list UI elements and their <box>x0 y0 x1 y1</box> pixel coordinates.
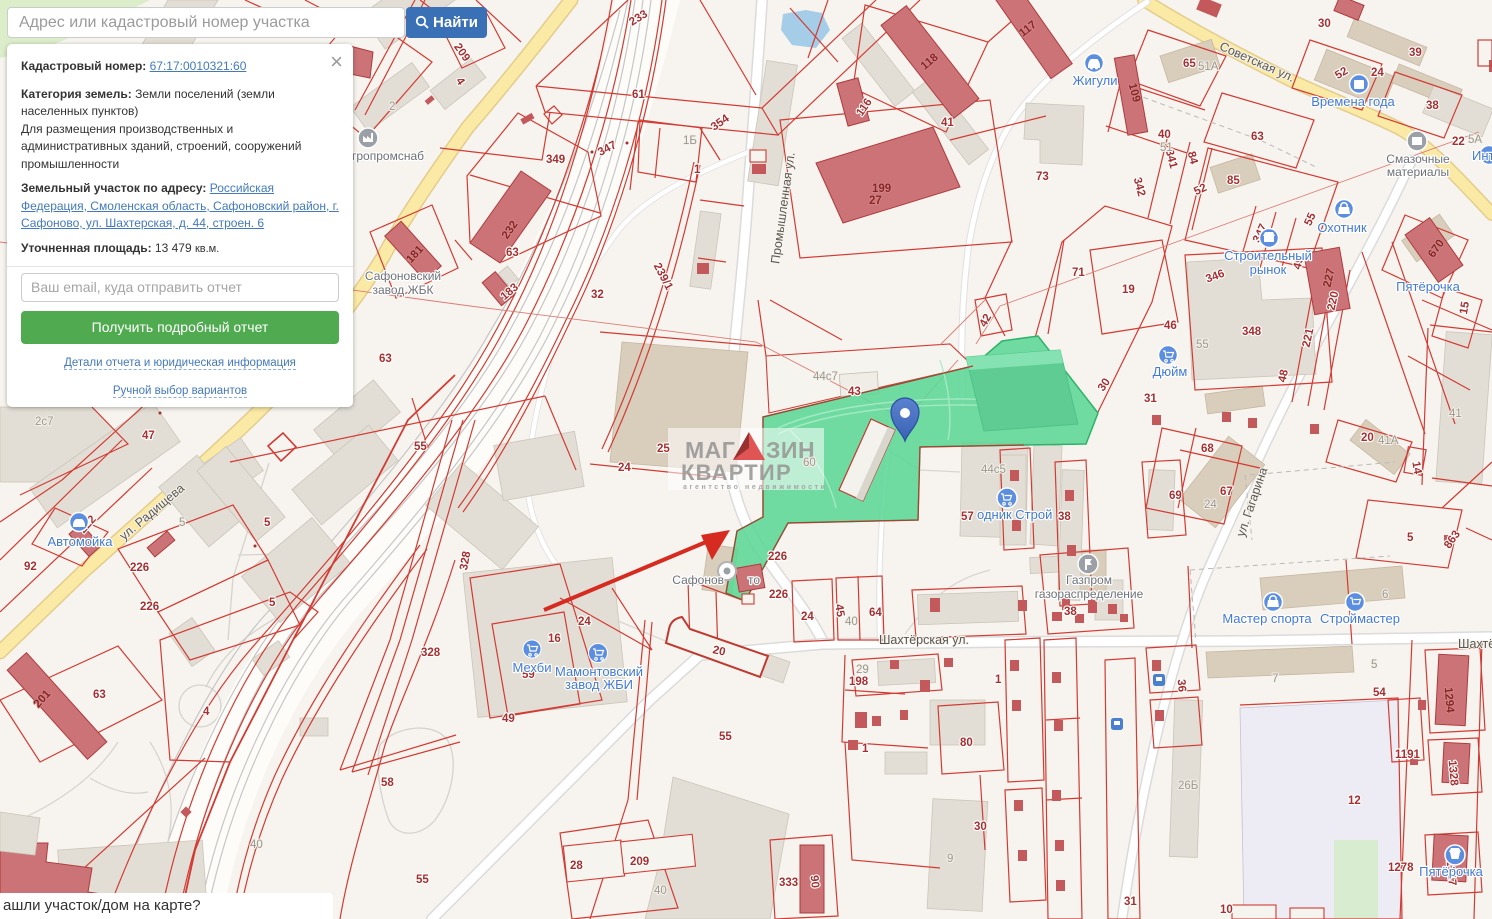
svg-text:51: 51 <box>1160 142 1173 154</box>
svg-text:63: 63 <box>1251 131 1264 143</box>
svg-text:Сафоновский: Сафоновский <box>365 269 441 283</box>
svg-text:64: 64 <box>869 607 882 619</box>
svg-text:61: 61 <box>632 89 645 101</box>
svg-text:29: 29 <box>856 664 869 676</box>
svg-text:Агропромснаб: Агропромснаб <box>344 149 424 163</box>
svg-text:одник Строй: одник Строй <box>977 507 1052 522</box>
svg-text:Инте: Инте <box>1472 148 1492 163</box>
svg-text:Строительный: Строительный <box>1224 248 1312 263</box>
svg-text:36: 36 <box>1175 679 1188 693</box>
svg-text:Сафонов: Сафонов <box>672 573 724 587</box>
svg-text:20: 20 <box>1361 432 1374 444</box>
svg-text:22: 22 <box>1452 136 1465 148</box>
svg-text:рынок: рынок <box>1250 262 1287 277</box>
svg-text:30: 30 <box>974 821 987 833</box>
svg-text:54: 54 <box>1373 687 1386 699</box>
svg-text:58: 58 <box>381 777 394 789</box>
svg-text:41: 41 <box>1449 408 1462 420</box>
svg-text:65: 65 <box>1183 58 1196 70</box>
svg-text:69: 69 <box>1169 490 1182 502</box>
svg-text:5: 5 <box>264 517 271 529</box>
svg-text:226: 226 <box>769 589 788 601</box>
svg-text:1Б: 1Б <box>683 135 697 147</box>
svg-text:63: 63 <box>93 689 106 701</box>
svg-text:199: 199 <box>872 183 891 195</box>
svg-text:226: 226 <box>140 601 159 613</box>
svg-text:348: 348 <box>1242 326 1262 338</box>
svg-text:5: 5 <box>1407 532 1414 544</box>
svg-text:4: 4 <box>203 706 210 718</box>
svg-text:41А: 41А <box>1378 435 1399 447</box>
svg-text:38: 38 <box>1426 100 1439 112</box>
svg-text:49: 49 <box>502 713 515 725</box>
svg-text:57: 57 <box>961 511 974 523</box>
svg-text:12: 12 <box>1348 795 1361 807</box>
svg-text:28: 28 <box>570 860 583 872</box>
svg-text:38: 38 <box>1064 606 1077 618</box>
svg-text:40: 40 <box>654 885 667 897</box>
svg-text:2: 2 <box>389 101 395 113</box>
svg-text:10: 10 <box>1220 904 1233 916</box>
svg-text:41: 41 <box>941 117 954 129</box>
svg-text:46: 46 <box>1164 320 1177 332</box>
svg-text:40: 40 <box>845 616 858 628</box>
svg-text:333: 333 <box>779 877 798 889</box>
svg-text:80: 80 <box>960 737 973 749</box>
svg-text:Пятёрочка: Пятёрочка <box>1396 279 1460 294</box>
svg-text:Жигули: Жигули <box>1072 73 1117 88</box>
svg-text:1: 1 <box>995 674 1002 686</box>
svg-text:2с7: 2с7 <box>35 416 54 428</box>
svg-text:1191: 1191 <box>1395 749 1421 761</box>
svg-text:Смазочные: Смазочные <box>1386 152 1450 166</box>
svg-text:16: 16 <box>548 633 561 645</box>
svg-text:27: 27 <box>869 195 882 207</box>
svg-text:7: 7 <box>1272 673 1278 685</box>
svg-text:47: 47 <box>142 430 155 442</box>
svg-text:90: 90 <box>808 875 821 889</box>
svg-text:1: 1 <box>862 743 869 755</box>
svg-text:Пятёрочка: Пятёрочка <box>1419 864 1483 879</box>
svg-text:30: 30 <box>1318 18 1331 30</box>
svg-text:71: 71 <box>1072 267 1085 279</box>
svg-text:1: 1 <box>694 164 701 176</box>
svg-text:92: 92 <box>24 561 37 573</box>
svg-text:32: 32 <box>591 289 604 301</box>
svg-text:24: 24 <box>618 462 631 474</box>
svg-text:завод ЖБК: завод ЖБК <box>372 283 433 297</box>
svg-text:5: 5 <box>1371 659 1377 671</box>
svg-text:газораспределение: газораспределение <box>1035 587 1144 601</box>
svg-text:КВАРТИР: КВАРТИР <box>681 460 792 485</box>
svg-text:198: 198 <box>849 676 869 688</box>
svg-text:агентство недвижимости: агентство недвижимости <box>683 484 828 491</box>
svg-text:5: 5 <box>269 597 276 609</box>
svg-text:Газпром: Газпром <box>1066 573 1112 587</box>
svg-text:Мехби: Мехби <box>513 660 552 675</box>
svg-text:Строймастер: Строймастер <box>1320 611 1400 626</box>
svg-text:63: 63 <box>506 247 519 259</box>
svg-text:73: 73 <box>1036 171 1049 183</box>
svg-text:67: 67 <box>1220 486 1233 498</box>
svg-text:226: 226 <box>768 551 787 563</box>
svg-text:40: 40 <box>250 839 263 851</box>
svg-text:26Б: 26Б <box>1178 780 1198 792</box>
svg-text:9: 9 <box>947 853 953 865</box>
svg-text:55: 55 <box>1196 339 1209 351</box>
svg-text:349: 349 <box>546 154 565 166</box>
svg-text:Шахтёрс: Шахтёрс <box>1458 637 1492 651</box>
svg-text:55: 55 <box>719 731 732 743</box>
svg-text:24: 24 <box>801 611 814 623</box>
svg-text:85: 85 <box>1227 175 1240 187</box>
svg-text:38: 38 <box>1058 511 1071 523</box>
svg-text:51А: 51А <box>1198 61 1219 73</box>
svg-text:40: 40 <box>1158 129 1171 141</box>
svg-text:6: 6 <box>1382 589 1388 601</box>
svg-text:1278: 1278 <box>1388 862 1414 874</box>
svg-text:55: 55 <box>414 441 427 453</box>
svg-text:завод ЖБИ: завод ЖБИ <box>565 677 633 692</box>
svg-text:Охотник: Охотник <box>1317 220 1367 235</box>
svg-text:31: 31 <box>1144 393 1157 405</box>
svg-text:25: 25 <box>657 443 670 455</box>
svg-text:Времена года: Времена года <box>1311 94 1395 109</box>
svg-text:1294: 1294 <box>1442 687 1456 714</box>
svg-text:328: 328 <box>421 647 441 659</box>
svg-text:19: 19 <box>1122 284 1135 296</box>
svg-text:5А: 5А <box>1468 134 1482 146</box>
svg-text:55: 55 <box>416 874 429 886</box>
svg-text:материалы: материалы <box>1387 165 1449 179</box>
svg-text:Дюйм: Дюйм <box>1153 364 1188 379</box>
svg-text:209: 209 <box>630 856 649 868</box>
svg-text:1328: 1328 <box>1446 760 1460 787</box>
svg-text:24: 24 <box>1371 67 1384 79</box>
svg-text:63: 63 <box>379 353 392 365</box>
svg-text:то: то <box>748 573 760 587</box>
svg-text:44с7: 44с7 <box>813 371 838 383</box>
svg-text:31: 31 <box>1124 896 1137 908</box>
svg-text:24: 24 <box>1204 499 1217 511</box>
svg-text:24: 24 <box>578 616 591 628</box>
svg-text:226: 226 <box>130 562 149 574</box>
svg-text:39: 39 <box>1409 47 1422 59</box>
svg-text:60: 60 <box>803 457 816 469</box>
svg-text:44с5: 44с5 <box>981 464 1006 476</box>
svg-text:Автомойка: Автомойка <box>48 534 114 549</box>
svg-text:68: 68 <box>1201 443 1214 455</box>
svg-text:Мастер спорта: Мастер спорта <box>1222 611 1312 626</box>
svg-text:43: 43 <box>848 386 861 398</box>
svg-text:5: 5 <box>179 517 185 529</box>
svg-text:Шахтёрская ул.: Шахтёрская ул. <box>879 633 969 647</box>
